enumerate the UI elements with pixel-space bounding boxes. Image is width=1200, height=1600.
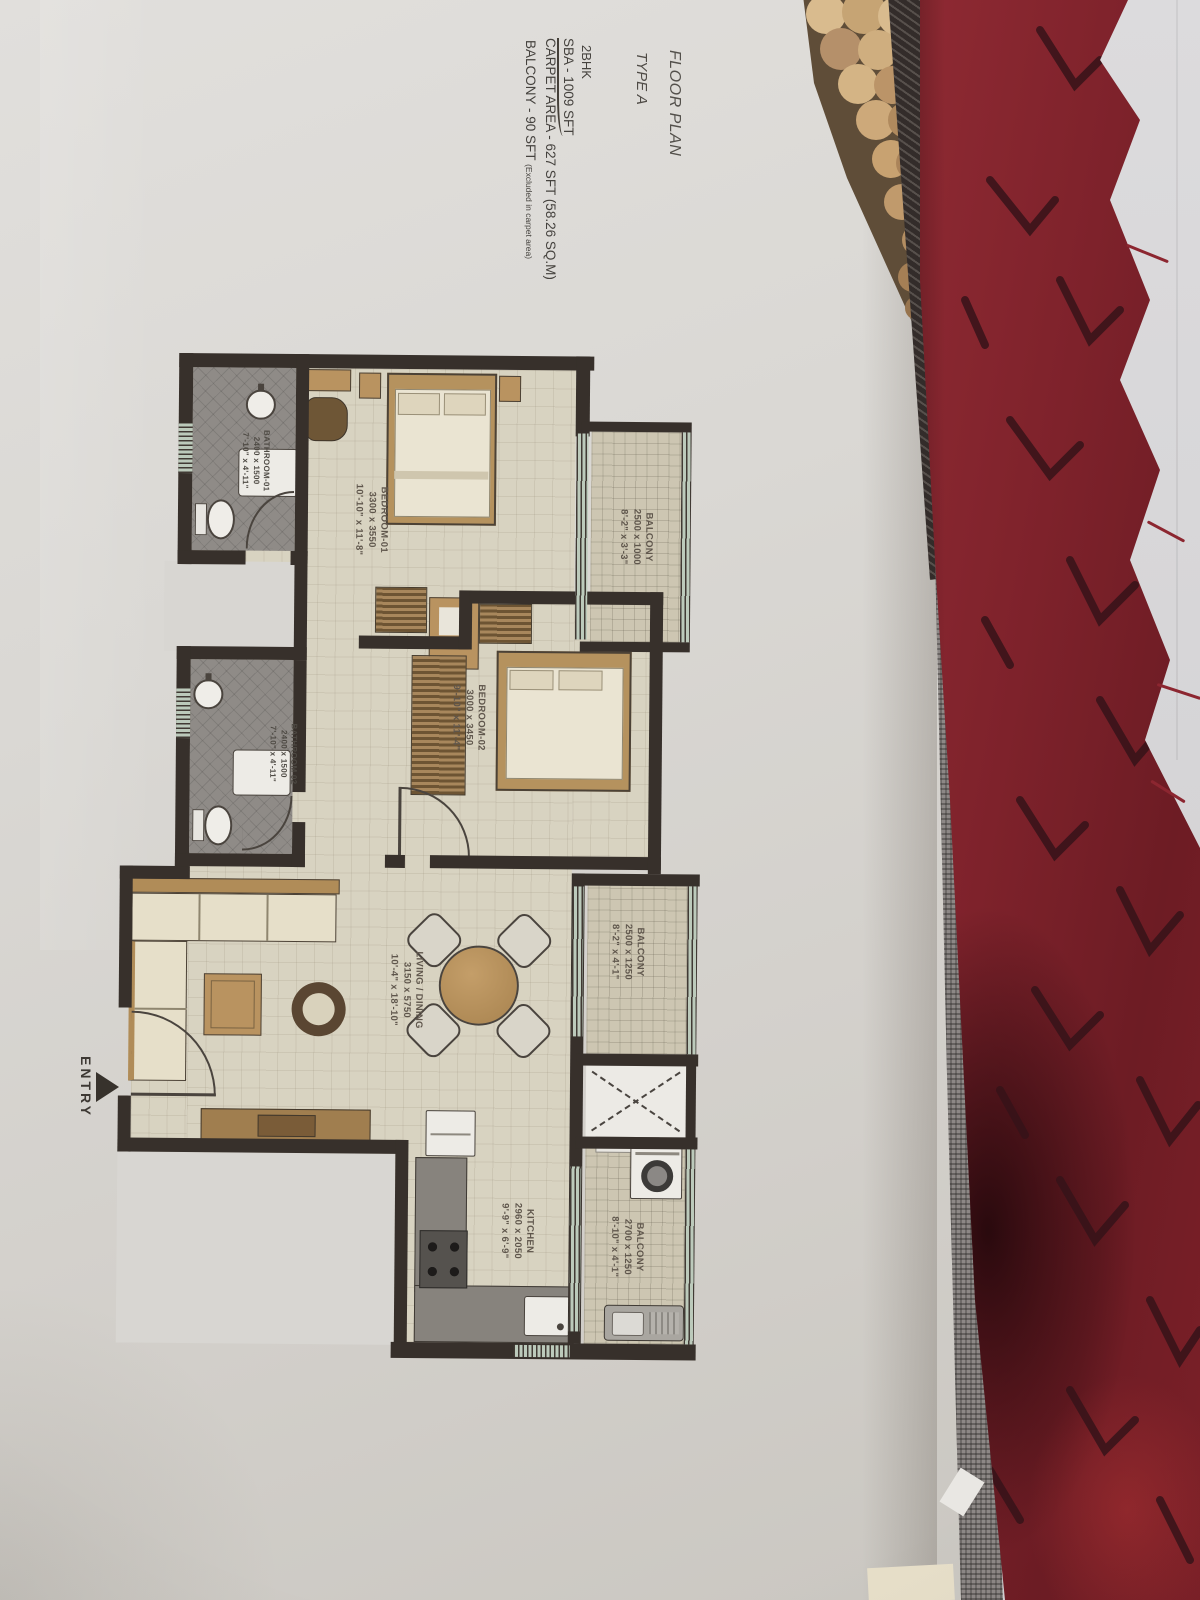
wall-segment	[578, 873, 700, 886]
plan-carpet-area: CARPET AREA - 627 SFT (58.26 SQ.M)	[543, 38, 558, 280]
window-kitchen	[514, 1345, 570, 1357]
room-dim-mm: 2500 x 1250	[621, 924, 634, 980]
room-name: BALCONY	[642, 509, 655, 565]
room-dim-mm: 2500 x 1000	[629, 509, 642, 565]
wall-segment	[294, 551, 308, 660]
paper-under-sheet	[867, 1564, 955, 1600]
room-name: BALCONY	[632, 1216, 645, 1277]
coffee-table	[203, 973, 262, 1036]
bedroom2-bed	[496, 651, 632, 792]
window-living-balcony	[571, 886, 583, 1036]
bedroom2-door-leaf	[398, 787, 402, 857]
plan-title: FLOOR PLAN	[665, 50, 683, 156]
bedroom1-side-table	[359, 373, 381, 399]
room-label-bedroom-01: BEDROOM-01 3300 x 3550 10'-10" x 11'-8"	[352, 484, 390, 556]
fridge	[425, 1110, 475, 1156]
window-bathroom1	[178, 423, 192, 473]
window-balcony2	[686, 886, 697, 1054]
window-kitchen-utility	[569, 1166, 581, 1331]
wall-segment	[580, 641, 690, 652]
room-dim-ft: 9'-10" x 11'-4"	[449, 684, 462, 750]
room-label-bathroom-02: BATHROOM 02 2400 x 1500 7'-10" x 4'-11"	[267, 723, 299, 784]
fringe-knot	[838, 64, 878, 104]
room-dim-mm: 2400 x 1500	[277, 723, 288, 784]
room-label-bedroom-02: BEDROOM-02 3000 x 3450 9'-10" x 11'-4"	[449, 684, 487, 751]
room-name: BATHROOM 02	[288, 723, 299, 784]
plan-type: TYPE A	[633, 52, 650, 105]
room-name: KITCHEN	[523, 1203, 536, 1259]
room-dim-mm: 3000 x 3450	[462, 684, 475, 750]
window-utility	[684, 1149, 696, 1344]
washing-machine	[630, 1147, 682, 1199]
shaft-duct-marking	[586, 1066, 687, 1138]
room-dim-ft: 10'-10" x 11'-8"	[352, 484, 365, 556]
bathroom2-washbasin	[193, 679, 223, 709]
sofa-seat	[131, 893, 336, 943]
wall-segment	[292, 822, 305, 867]
floor-plan: BALCONY 2500 x 1000 8'-2" x 3'-3" BEDROO…	[106, 342, 715, 1362]
kitchen-tap	[557, 1323, 564, 1330]
room-label-balcony-1: BALCONY 2500 x 1000 8'-2" x 3'-3"	[617, 509, 655, 565]
room-name: BATHROOM-01	[260, 430, 271, 491]
wall-segment	[430, 855, 661, 870]
wall-segment	[685, 1054, 696, 1149]
bathroom2-tap	[205, 673, 211, 681]
tv-console	[200, 1108, 370, 1141]
room-dim-ft: 10'-4" x 18'-10"	[387, 951, 400, 1028]
wall-segment	[177, 646, 307, 660]
entry-arrow-icon	[96, 1072, 119, 1102]
plan-config: 2BHK	[579, 45, 594, 79]
room-label-utility-balcony: BALCONY 2700 x 1250 8'-10" x 4'-1"	[608, 1216, 646, 1277]
wall-segment	[359, 636, 469, 650]
bathroom1-tap	[258, 384, 264, 392]
room-label-kitchen: KITCHEN 2960 x 2050 9'-9" x 6'-9"	[498, 1203, 536, 1259]
wall-segment	[648, 592, 663, 874]
utility-sink	[604, 1305, 684, 1342]
bathroom2-cistern	[192, 809, 204, 841]
wall-segment	[175, 853, 305, 867]
room-name: BEDROOM-01	[377, 484, 390, 556]
pillow	[558, 670, 602, 690]
pillow	[444, 393, 486, 415]
photo-of-floor-plan: BALCONY 2500 x 1000 8'-2" x 3'-3" BEDROO…	[0, 0, 1200, 1600]
kitchen-sink	[524, 1296, 570, 1336]
window-balcony1	[680, 432, 692, 642]
dining-table	[438, 945, 519, 1026]
wall-segment	[575, 1136, 697, 1149]
wall-segment	[582, 421, 692, 432]
window-bathroom2	[176, 688, 190, 738]
room-label-bathroom-01: BATHROOM-01 2400 x 1500 7'-10" x 4'-11"	[240, 430, 272, 492]
room-label-living-dining: LIVING / DINING 3150 x 5750 10'-4" x 18'…	[387, 951, 425, 1029]
window-bedroom1-balcony	[575, 433, 589, 639]
room-dim-mm: 2960 x 2050	[510, 1203, 523, 1259]
hob	[419, 1230, 468, 1288]
wall-segment	[576, 1053, 698, 1066]
room-dim-mm: 2400 x 1500	[250, 430, 261, 491]
bedroom1-bed	[386, 373, 497, 526]
wall-segment	[295, 354, 310, 565]
bedroom1-side-table	[499, 376, 521, 402]
room-dim-ft: 8'-2" x 4'-1"	[608, 924, 621, 980]
room-dim-ft: 9'-9" x 6'-9"	[498, 1203, 511, 1259]
bathroom1-washbasin	[246, 390, 276, 420]
wall-segment	[385, 855, 405, 868]
wall-segment	[394, 1140, 409, 1356]
room-name: BALCONY	[633, 924, 646, 980]
bedroom2-dresser	[479, 604, 532, 644]
room-name: BEDROOM-02	[474, 684, 487, 750]
room-label-balcony-2: BALCONY 2500 x 1250 8'-2" x 4'-1"	[608, 924, 646, 980]
room-dim-ft: 8'-2" x 3'-3"	[617, 509, 630, 565]
balcony-area-note: (Excluded in carpet area)	[524, 164, 534, 259]
room-name: LIVING / DINING	[412, 951, 425, 1028]
pillow	[398, 393, 440, 415]
room-dim-mm: 2700 x 1250	[620, 1216, 633, 1277]
wall-segment	[178, 550, 246, 565]
plan-sba: SBA - 1009 SFT	[557, 38, 576, 136]
wall-corner-line	[1176, 0, 1178, 760]
room-dim-mm: 3300 x 3550	[364, 484, 377, 556]
balcony-area-value: BALCONY - 90 SFT	[523, 40, 538, 160]
pillow	[509, 670, 553, 690]
outside-notch	[164, 561, 308, 652]
entry-label: ENTRY	[78, 1056, 94, 1118]
plan-balcony-area: BALCONY - 90 SFT (Excluded in carpet are…	[523, 40, 538, 259]
bedroom1-dresser	[375, 587, 427, 633]
wall-segment	[117, 1137, 407, 1154]
outside-notch	[116, 1151, 396, 1344]
bedroom1-chair	[306, 397, 348, 441]
room-dim-ft: 7'-10" x 4'-11"	[240, 430, 251, 491]
room-dim-mm: 3150 x 5750	[399, 951, 412, 1028]
wall-segment	[119, 865, 133, 1007]
wall-segment	[469, 591, 663, 606]
room-dim-ft: 7'-10" x 4'-11"	[267, 723, 278, 784]
room-dim-ft: 8'-10" x 4'-1"	[608, 1216, 621, 1277]
wall-segment	[175, 646, 191, 869]
bathroom1-cistern	[195, 503, 207, 535]
